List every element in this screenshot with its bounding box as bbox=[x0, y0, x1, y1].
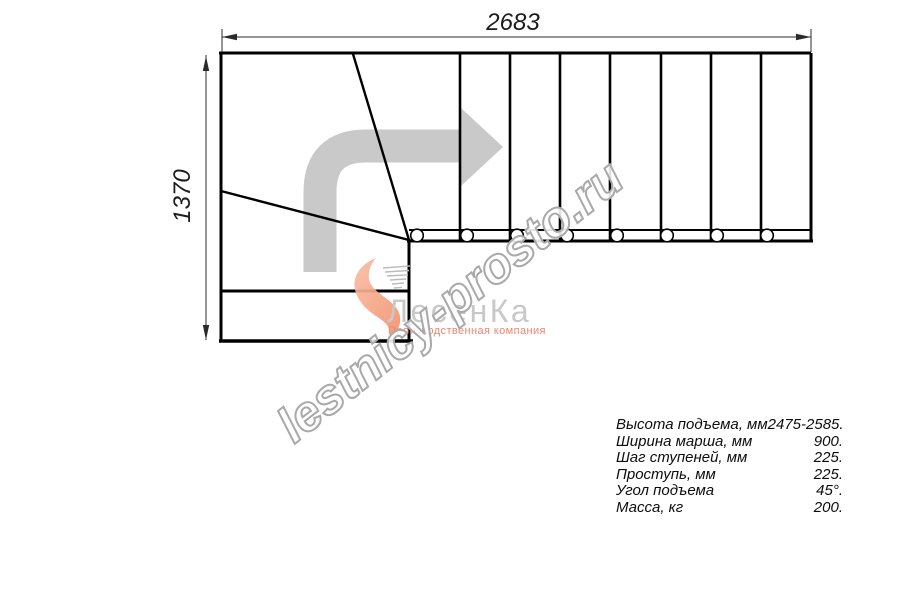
spec-row: Масса, кг200. bbox=[616, 500, 843, 517]
spec-row: Угол подъема45°. bbox=[616, 483, 843, 500]
direction-arrow-shaft bbox=[320, 146, 461, 272]
staircase-drawing-canvas: 2683 1370 bbox=[0, 0, 900, 600]
spec-value: 2475-2585. bbox=[768, 417, 844, 434]
support-circle bbox=[711, 229, 724, 242]
spec-label: Шаг ступеней, мм bbox=[616, 450, 747, 467]
dimension-width-label: 2683 bbox=[485, 9, 540, 36]
spec-label: Угол подъема bbox=[616, 483, 714, 500]
support-circle bbox=[561, 229, 574, 242]
spec-value: 200. bbox=[814, 500, 843, 517]
dimension-left: 1370 bbox=[169, 55, 209, 340]
spec-label: Ширина марша, мм bbox=[616, 434, 752, 451]
dim-arrowhead-left bbox=[222, 34, 237, 40]
spec-label: Высота подъема, мм bbox=[616, 417, 768, 434]
spec-value: 225. bbox=[814, 450, 843, 467]
spec-value: 900. bbox=[814, 434, 843, 451]
dimension-top: 2683 bbox=[222, 9, 811, 52]
spec-value: 45°. bbox=[816, 483, 843, 500]
support-circle bbox=[611, 229, 624, 242]
support-circle bbox=[511, 229, 524, 242]
dim-arrowhead-right bbox=[796, 34, 811, 40]
support-circle bbox=[411, 229, 424, 242]
speed-lines-icon bbox=[383, 266, 410, 288]
spec-row: Шаг ступеней, мм225. bbox=[616, 450, 843, 467]
support-circle bbox=[761, 229, 774, 242]
spec-row: Высота подъема, мм2475-2585. bbox=[616, 417, 843, 434]
direction-arrow bbox=[320, 108, 503, 272]
logo-tagline: Производственная компания bbox=[388, 325, 588, 337]
direction-arrow-head bbox=[461, 108, 503, 186]
spec-row: Проступь, мм225. bbox=[616, 467, 843, 484]
dim-arrowhead-top bbox=[203, 56, 209, 71]
spec-row: Ширина марша, мм900. bbox=[616, 434, 843, 451]
dim-arrowhead-bottom bbox=[203, 325, 209, 340]
tread-lines bbox=[460, 54, 761, 241]
spec-table: Высота подъема, мм2475-2585.Ширина марша… bbox=[616, 417, 843, 517]
spec-label: Проступь, мм bbox=[616, 467, 716, 484]
spec-value: 225. bbox=[814, 467, 843, 484]
support-circle bbox=[661, 229, 674, 242]
spec-label: Масса, кг bbox=[616, 500, 683, 517]
support-circle bbox=[461, 229, 474, 242]
dimension-height-label: 1370 bbox=[169, 169, 196, 223]
